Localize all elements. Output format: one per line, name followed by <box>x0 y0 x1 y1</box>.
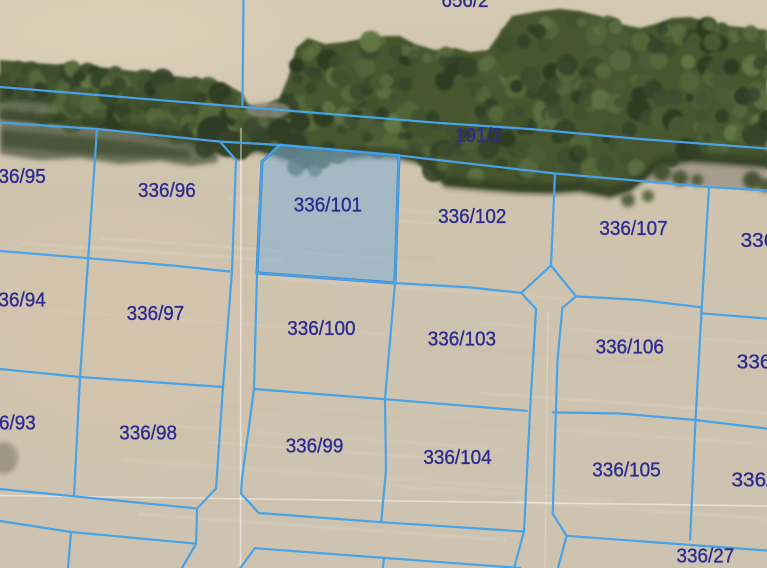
svg-text:336/1: 336/1 <box>737 352 767 374</box>
svg-text:336/103: 336/103 <box>428 328 496 350</box>
svg-text:336/100: 336/100 <box>287 318 355 340</box>
svg-text:336/1: 336/1 <box>741 230 767 252</box>
svg-text:336/101: 336/101 <box>294 195 362 217</box>
svg-text:336/107: 336/107 <box>599 218 667 240</box>
svg-text:336/93: 336/93 <box>0 413 36 435</box>
svg-text:336/97: 336/97 <box>127 303 185 325</box>
svg-text:336/1: 336/1 <box>732 470 767 492</box>
svg-text:336/27: 336/27 <box>677 546 735 568</box>
svg-text:336/105: 336/105 <box>592 460 660 482</box>
svg-text:336/106: 336/106 <box>596 337 664 359</box>
svg-text:336/102: 336/102 <box>438 206 506 228</box>
svg-text:336/99: 336/99 <box>286 436 344 458</box>
svg-text:336/104: 336/104 <box>423 447 491 469</box>
svg-text:336/96: 336/96 <box>138 180 196 202</box>
svg-text:336/98: 336/98 <box>119 422 177 444</box>
svg-text:191/2: 191/2 <box>455 125 502 147</box>
svg-text:336/94: 336/94 <box>0 290 46 312</box>
svg-text:336/95: 336/95 <box>0 166 46 188</box>
svg-text:656/2: 656/2 <box>442 0 489 12</box>
